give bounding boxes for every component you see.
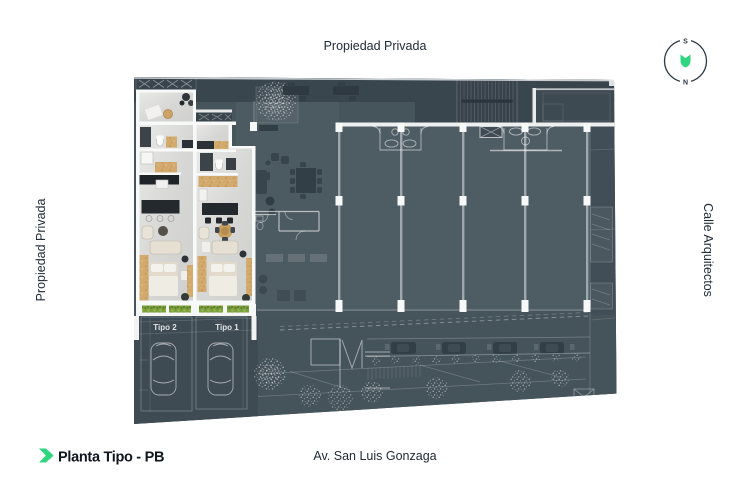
svg-text:Planta Tipo - PB: Planta Tipo - PB (58, 450, 164, 466)
svg-text:Propiedad Privada: Propiedad Privada (324, 39, 427, 53)
svg-text:S: S (683, 39, 688, 46)
svg-text:Propiedad Privada: Propiedad Privada (34, 199, 48, 302)
svg-text:Calle Arquitectos: Calle Arquitectos (701, 203, 715, 297)
svg-text:Tipo 1: Tipo 1 (215, 323, 239, 332)
svg-text:Tipo 2: Tipo 2 (153, 323, 177, 332)
svg-text:Av. San Luis Gonzaga: Av. San Luis Gonzaga (313, 449, 436, 463)
svg-text:N: N (683, 80, 688, 87)
